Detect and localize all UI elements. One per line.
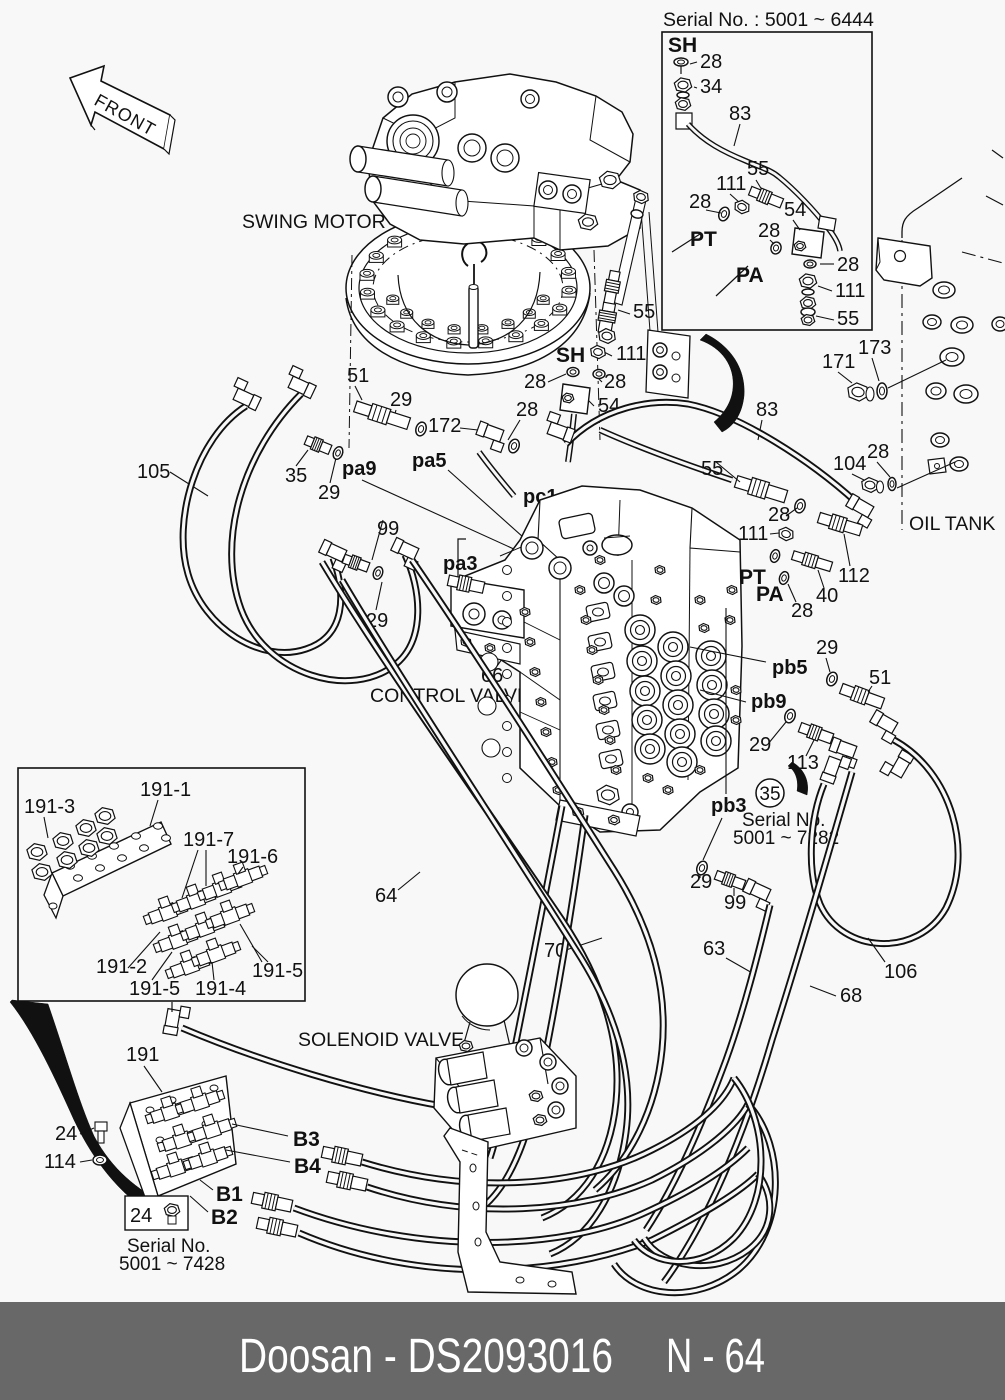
svg-text:172: 172 <box>428 415 461 437</box>
svg-text:SH: SH <box>556 344 585 367</box>
svg-text:28: 28 <box>604 371 626 393</box>
svg-text:34: 34 <box>700 76 722 98</box>
svg-text:191-4: 191-4 <box>195 978 246 1000</box>
svg-text:51: 51 <box>869 667 891 689</box>
svg-text:28: 28 <box>837 254 859 276</box>
svg-text:29: 29 <box>390 389 412 411</box>
svg-text:29: 29 <box>690 871 712 893</box>
svg-text:pb5: pb5 <box>772 657 808 679</box>
svg-text:28: 28 <box>758 220 780 242</box>
svg-text:5001 ~ 7282: 5001 ~ 7282 <box>733 828 839 849</box>
svg-text:191-5: 191-5 <box>252 960 303 982</box>
svg-text:68: 68 <box>840 985 862 1007</box>
svg-text:SH: SH <box>668 34 697 57</box>
svg-text:111: 111 <box>835 280 865 302</box>
svg-text:pb9: pb9 <box>751 691 787 713</box>
svg-text:51: 51 <box>347 365 369 387</box>
svg-text:104: 104 <box>833 453 866 475</box>
svg-text:24: 24 <box>55 1123 77 1145</box>
svg-text:106: 106 <box>884 961 917 983</box>
svg-text:SWING MOTOR: SWING MOTOR <box>242 211 386 233</box>
svg-text:191-3: 191-3 <box>24 796 75 818</box>
svg-text:191-6: 191-6 <box>227 846 278 868</box>
svg-text:B4: B4 <box>294 1155 321 1178</box>
svg-text:28: 28 <box>524 371 546 393</box>
svg-text:Doosan - DS2093016: Doosan - DS2093016 <box>239 1330 613 1383</box>
svg-text:55: 55 <box>747 158 769 180</box>
svg-text:112: 112 <box>838 565 870 587</box>
svg-text:55: 55 <box>633 301 655 323</box>
svg-text:171: 171 <box>822 351 855 373</box>
svg-text:29: 29 <box>749 734 771 756</box>
svg-text:35: 35 <box>285 465 307 487</box>
svg-text:40: 40 <box>816 585 838 607</box>
svg-text:24: 24 <box>130 1205 152 1227</box>
svg-text:pa9: pa9 <box>342 458 376 480</box>
svg-text:99: 99 <box>724 892 746 914</box>
svg-text:191: 191 <box>126 1044 159 1066</box>
svg-text:111: 111 <box>616 343 646 365</box>
svg-text:pa5: pa5 <box>412 450 446 472</box>
svg-text:B1: B1 <box>216 1183 243 1206</box>
svg-text:N - 64: N - 64 <box>666 1330 765 1383</box>
svg-text:PA: PA <box>736 264 764 287</box>
svg-text:29: 29 <box>816 637 838 659</box>
svg-text:35: 35 <box>759 784 780 805</box>
svg-text:54: 54 <box>784 199 806 221</box>
svg-text:105: 105 <box>137 461 170 483</box>
svg-text:63: 63 <box>703 938 725 960</box>
svg-text:28: 28 <box>516 399 538 421</box>
svg-text:SOLENOID VALVE: SOLENOID VALVE <box>298 1029 464 1051</box>
svg-text:pb3: pb3 <box>711 795 747 817</box>
svg-text:PA: PA <box>756 583 784 606</box>
svg-text:191-2: 191-2 <box>96 956 147 978</box>
svg-text:pa3: pa3 <box>443 553 477 575</box>
svg-text:28: 28 <box>700 51 722 73</box>
svg-text:Serial No. : 5001 ~ 6444: Serial No. : 5001 ~ 6444 <box>663 9 874 31</box>
svg-text:173: 173 <box>858 337 891 359</box>
svg-text:191-5: 191-5 <box>129 978 180 1000</box>
svg-text:55: 55 <box>701 458 723 480</box>
svg-text:OIL TANK: OIL TANK <box>909 513 995 535</box>
svg-text:B2: B2 <box>211 1206 238 1229</box>
svg-text:83: 83 <box>729 103 751 125</box>
svg-text:28: 28 <box>867 441 889 463</box>
svg-text:191-1: 191-1 <box>140 779 191 801</box>
svg-text:114: 114 <box>44 1151 76 1173</box>
svg-text:PT: PT <box>690 228 717 251</box>
svg-text:111: 111 <box>738 523 768 545</box>
svg-text:B3: B3 <box>293 1128 320 1151</box>
svg-text:29: 29 <box>318 482 340 504</box>
svg-text:5001 ~ 7428: 5001 ~ 7428 <box>119 1254 225 1275</box>
svg-text:83: 83 <box>756 399 778 421</box>
svg-text:64: 64 <box>375 885 397 907</box>
svg-text:111: 111 <box>716 173 746 195</box>
svg-text:55: 55 <box>837 308 859 330</box>
svg-text:28: 28 <box>689 191 711 213</box>
svg-text:28: 28 <box>791 600 813 622</box>
